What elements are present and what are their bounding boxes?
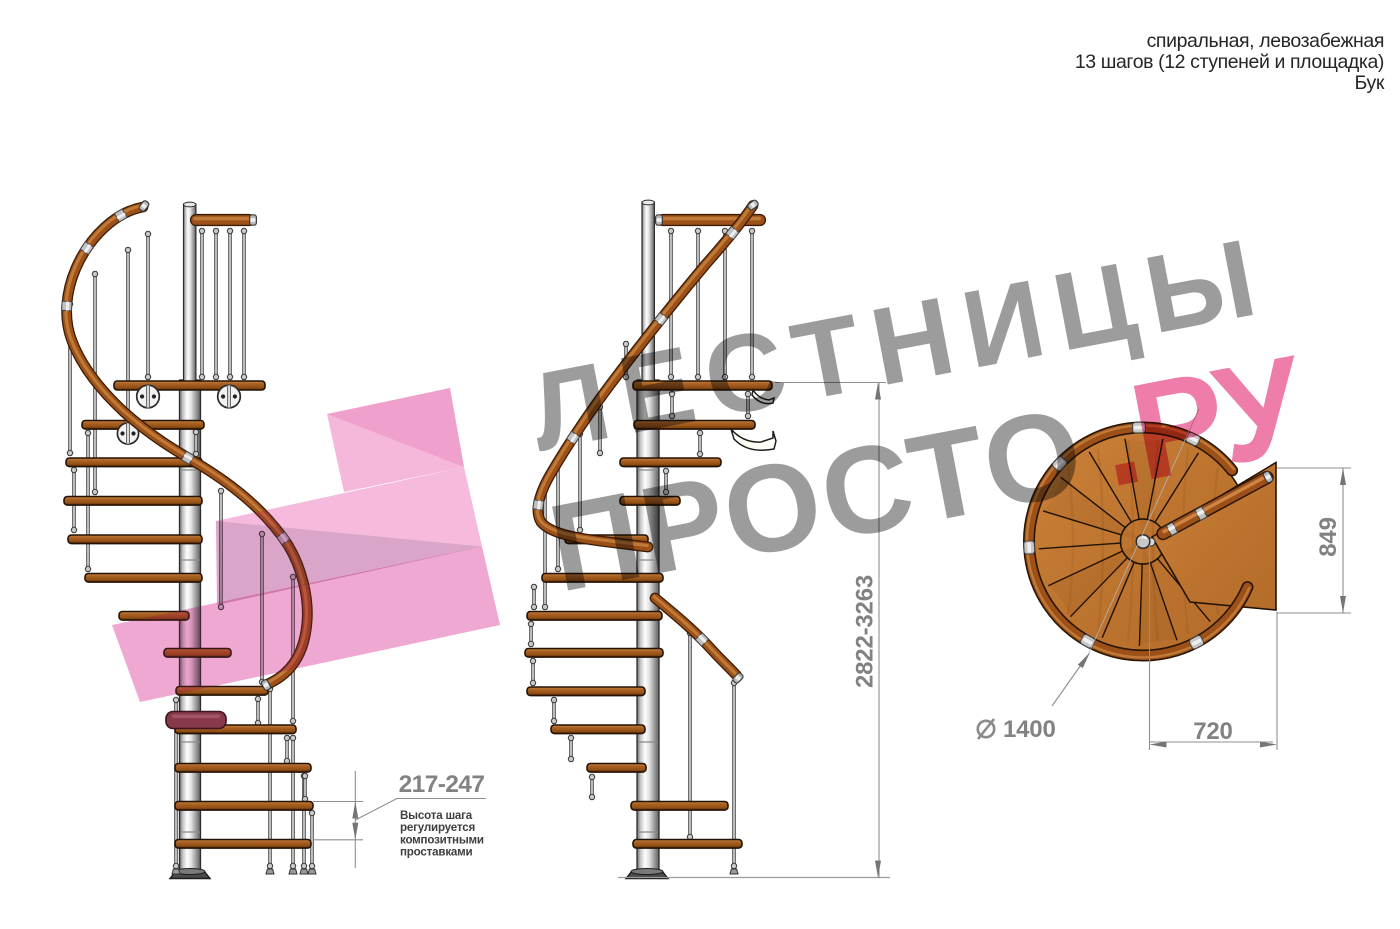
svg-text:13 шагов (12 ступеней и площад: 13 шагов (12 ступеней и площадка) (1075, 51, 1384, 73)
svg-text:спиральная, левозабежная: спиральная, левозабежная (1147, 30, 1384, 52)
svg-text:2822-3263: 2822-3263 (852, 575, 879, 688)
svg-text:1400: 1400 (1003, 716, 1056, 743)
svg-text:композитными: композитными (400, 833, 484, 846)
svg-text:217-247: 217-247 (399, 771, 485, 798)
svg-text:регулируется: регулируется (400, 821, 475, 834)
svg-text:проставками: проставками (400, 846, 473, 859)
svg-text:849: 849 (1315, 517, 1342, 556)
svg-text:Бук: Бук (1355, 72, 1385, 94)
svg-text:Высота шага: Высота шага (400, 809, 473, 822)
svg-text:720: 720 (1193, 718, 1232, 745)
